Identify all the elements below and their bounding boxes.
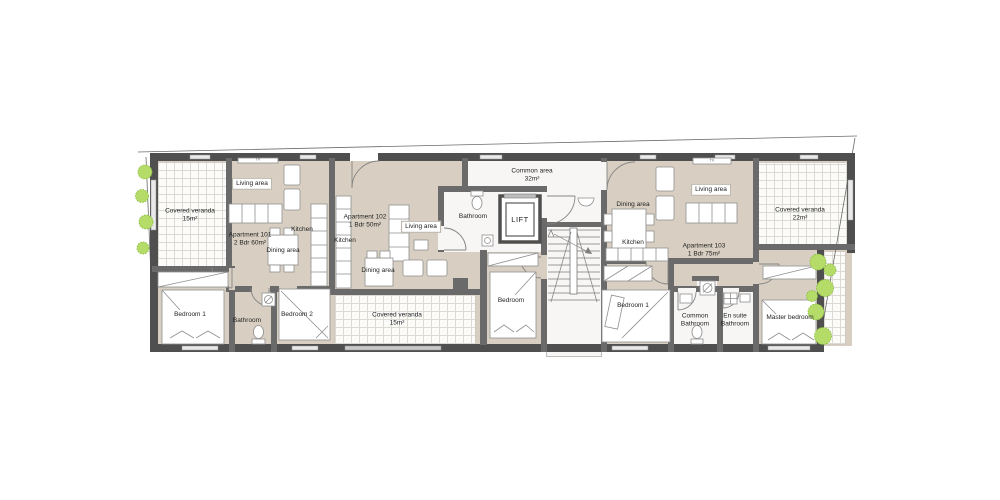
stair-landing [547, 314, 601, 344]
label-master-bedroom: Master bedroom [766, 314, 813, 322]
bathroom-102-floor [441, 189, 547, 252]
label-apt102-kitchen: Kitchen [334, 237, 356, 245]
label-apt101-bedroom1: Bedroom 1 [174, 311, 206, 319]
label-apt101-dining: Dining area [266, 247, 299, 255]
label-apt103-living-area: Living area [691, 184, 731, 196]
label-veranda-top-right: Covered veranda22m² [775, 207, 825, 224]
label-apt102-bathroom: Bathroom [459, 213, 487, 221]
label-lift: LIFT [511, 215, 528, 225]
landing-stub [547, 345, 601, 356]
label-tv-apt101: TV [256, 158, 260, 163]
label-apt102-dining: Dining area [361, 267, 394, 275]
veranda-top-right [758, 163, 847, 245]
label-common-area: Common area32m² [511, 168, 552, 185]
label-apt102-living-area: Living area [401, 221, 441, 233]
label-apt103-bedroom1: Bedroom 1 [617, 302, 649, 310]
label-apt101-name: Apartment 1012 Bdr 60m² [229, 232, 272, 249]
label-apt103-name: Apartment 1031 Bdr 75m² [683, 243, 726, 260]
label-apt103-kitchen: Kitchen [622, 239, 644, 247]
staircase-floor [547, 226, 601, 314]
label-apt101-kitchen: Kitchen [291, 226, 313, 234]
label-apt103-dining: Dining area [616, 201, 649, 209]
label-ensuite-bathroom: En suiteBathroom [721, 313, 749, 330]
veranda-right-strip [824, 252, 845, 344]
label-apt101-living-area: Living area [232, 178, 272, 190]
label-apt102-bedroom: Bedroom [498, 297, 524, 305]
label-apt101-bathroom: Bathroom [233, 317, 261, 325]
washer-niche [697, 279, 717, 296]
wc-nook [547, 192, 601, 224]
floor-plan: Covered veranda15m² Living area TV Apart… [0, 0, 1000, 500]
label-veranda-bottom-middle: Covered veranda15m² [372, 312, 422, 329]
label-tv-apt103: TV [710, 159, 714, 164]
label-apt102-name: Apartment 1021 Bdr 50m² [344, 214, 387, 231]
label-common-bathroom: CommonBathroom [681, 313, 709, 330]
label-apt101-bedroom2: Bedroom 2 [281, 311, 313, 319]
label-veranda-top-left: Covered veranda15m² [165, 208, 215, 225]
